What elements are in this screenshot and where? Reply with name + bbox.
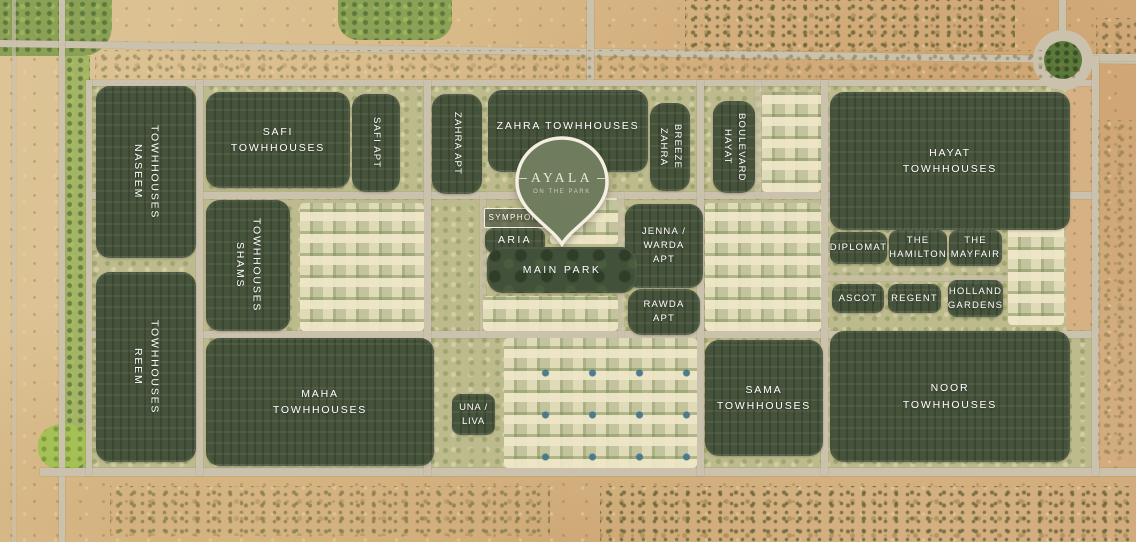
zone-regent: REGENT <box>888 284 941 313</box>
brand-logo: AYALA <box>515 170 609 186</box>
logo-rule-left <box>518 178 527 179</box>
zone-una-liva: UNA / LIVA <box>452 394 495 435</box>
desert-shrubs <box>1098 120 1136 460</box>
zone-main-park: MAIN PARK <box>487 247 637 293</box>
zone-label: DIPLOMAT <box>830 241 887 255</box>
zone-hayat-boulevard: HAYAT BOULEVARD <box>713 101 755 193</box>
desert-shrubs <box>685 0 1015 52</box>
zone-rawda-apt: RAWDA APT <box>628 289 700 335</box>
ayala-map-pin: AYALA ON THE PARK <box>509 134 615 248</box>
zone-safi-apt: SAFI APT <box>352 94 400 192</box>
zone-hayat-towhhouses: HAYAT TOWHHOUSES <box>830 92 1070 230</box>
zone-diplomat: DIPLOMAT <box>830 232 887 264</box>
residential-cluster <box>300 203 424 331</box>
zone-the-hamilton: THE HAMILTON <box>889 230 947 266</box>
zone-label: MAHA TOWHHOUSES <box>273 386 367 419</box>
logo-rule-right <box>597 178 606 179</box>
zone-label: UNA / LIVA <box>459 401 488 429</box>
zone-label: RAWDA APT <box>643 298 684 326</box>
zone-noor-towhhouses: NOOR TOWHHOUSES <box>830 331 1070 462</box>
zone-label: HAYAT BOULEVARD <box>720 113 748 182</box>
zone-label: THE HAMILTON <box>889 234 947 262</box>
zone-label: THE MAYFAIR <box>951 234 1000 262</box>
zone-label: REGENT <box>891 292 938 306</box>
residential-cluster <box>1008 225 1064 325</box>
zone-label: SHAMS TOWHHOUSES <box>232 218 265 312</box>
zone-label: MAIN PARK <box>523 262 602 278</box>
road <box>88 80 1096 86</box>
zone-safi-towhhouses: SAFI TOWHHOUSES <box>206 92 350 188</box>
zone-label: SAFI APT <box>369 117 383 168</box>
zone-zahra-breeze: ZAHRA BREEZE <box>650 103 690 191</box>
road <box>1059 0 1066 34</box>
greenery-patch <box>338 0 452 40</box>
residential-cluster <box>762 92 821 192</box>
road <box>196 80 203 476</box>
masterplan-map: NASEEM TOWHHOUSES SAFI TOWHHOUSES SAFI A… <box>0 0 1136 542</box>
desert-strip <box>1066 84 1094 330</box>
zone-label: REEM TOWHHOUSES <box>130 320 163 414</box>
brand-name: AYALA <box>531 170 593 186</box>
zone-reem-towhhouses: REEM TOWHHOUSES <box>96 272 196 462</box>
road <box>755 80 761 198</box>
zone-label: NASEEM TOWHHOUSES <box>130 125 163 219</box>
desert-shrubs <box>95 50 1080 78</box>
zone-label: ZAHRA TOWHHOUSES <box>497 118 640 134</box>
zone-ascot: ASCOT <box>832 284 884 313</box>
zone-zahra-apt: ZAHRA APT <box>432 94 482 194</box>
zone-sama-towhhouses: SAMA TOWHHOUSES <box>705 340 823 456</box>
zone-naseem-towhhouses: NASEEM TOWHHOUSES <box>96 86 196 258</box>
zone-label: NOOR TOWHHOUSES <box>903 380 997 413</box>
desert-shrubs <box>600 486 1130 542</box>
road <box>86 80 92 476</box>
desert-shrubs <box>110 486 550 536</box>
zone-the-mayfair: THE MAYFAIR <box>949 230 1002 266</box>
zone-label: HAYAT TOWHHOUSES <box>903 145 997 178</box>
residential-cluster <box>483 296 618 331</box>
road <box>40 468 1136 476</box>
zone-shams-towhhouses: SHAMS TOWHHOUSES <box>206 200 290 331</box>
zone-label: ASCOT <box>839 292 878 306</box>
desert-shrubs <box>1096 18 1136 54</box>
zone-label: JENNA / WARDA APT <box>642 225 686 266</box>
road <box>59 0 65 542</box>
zone-label: SAFI TOWHHOUSES <box>231 124 325 157</box>
zone-maha-towhhouses: MAHA TOWHHOUSES <box>206 338 434 466</box>
zone-label: HOLLAND GARDENS <box>948 285 1003 313</box>
zone-label: ZAHRA BREEZE <box>656 124 684 169</box>
zone-label: ZAHRA APT <box>450 112 464 175</box>
zone-holland-gardens: HOLLAND GARDENS <box>948 280 1003 317</box>
brand-tagline: ON THE PARK <box>515 189 609 195</box>
road <box>12 0 16 542</box>
residential-cluster <box>705 203 821 331</box>
residential-cluster-pools <box>504 338 697 468</box>
zone-label: SAMA TOWHHOUSES <box>717 382 811 415</box>
